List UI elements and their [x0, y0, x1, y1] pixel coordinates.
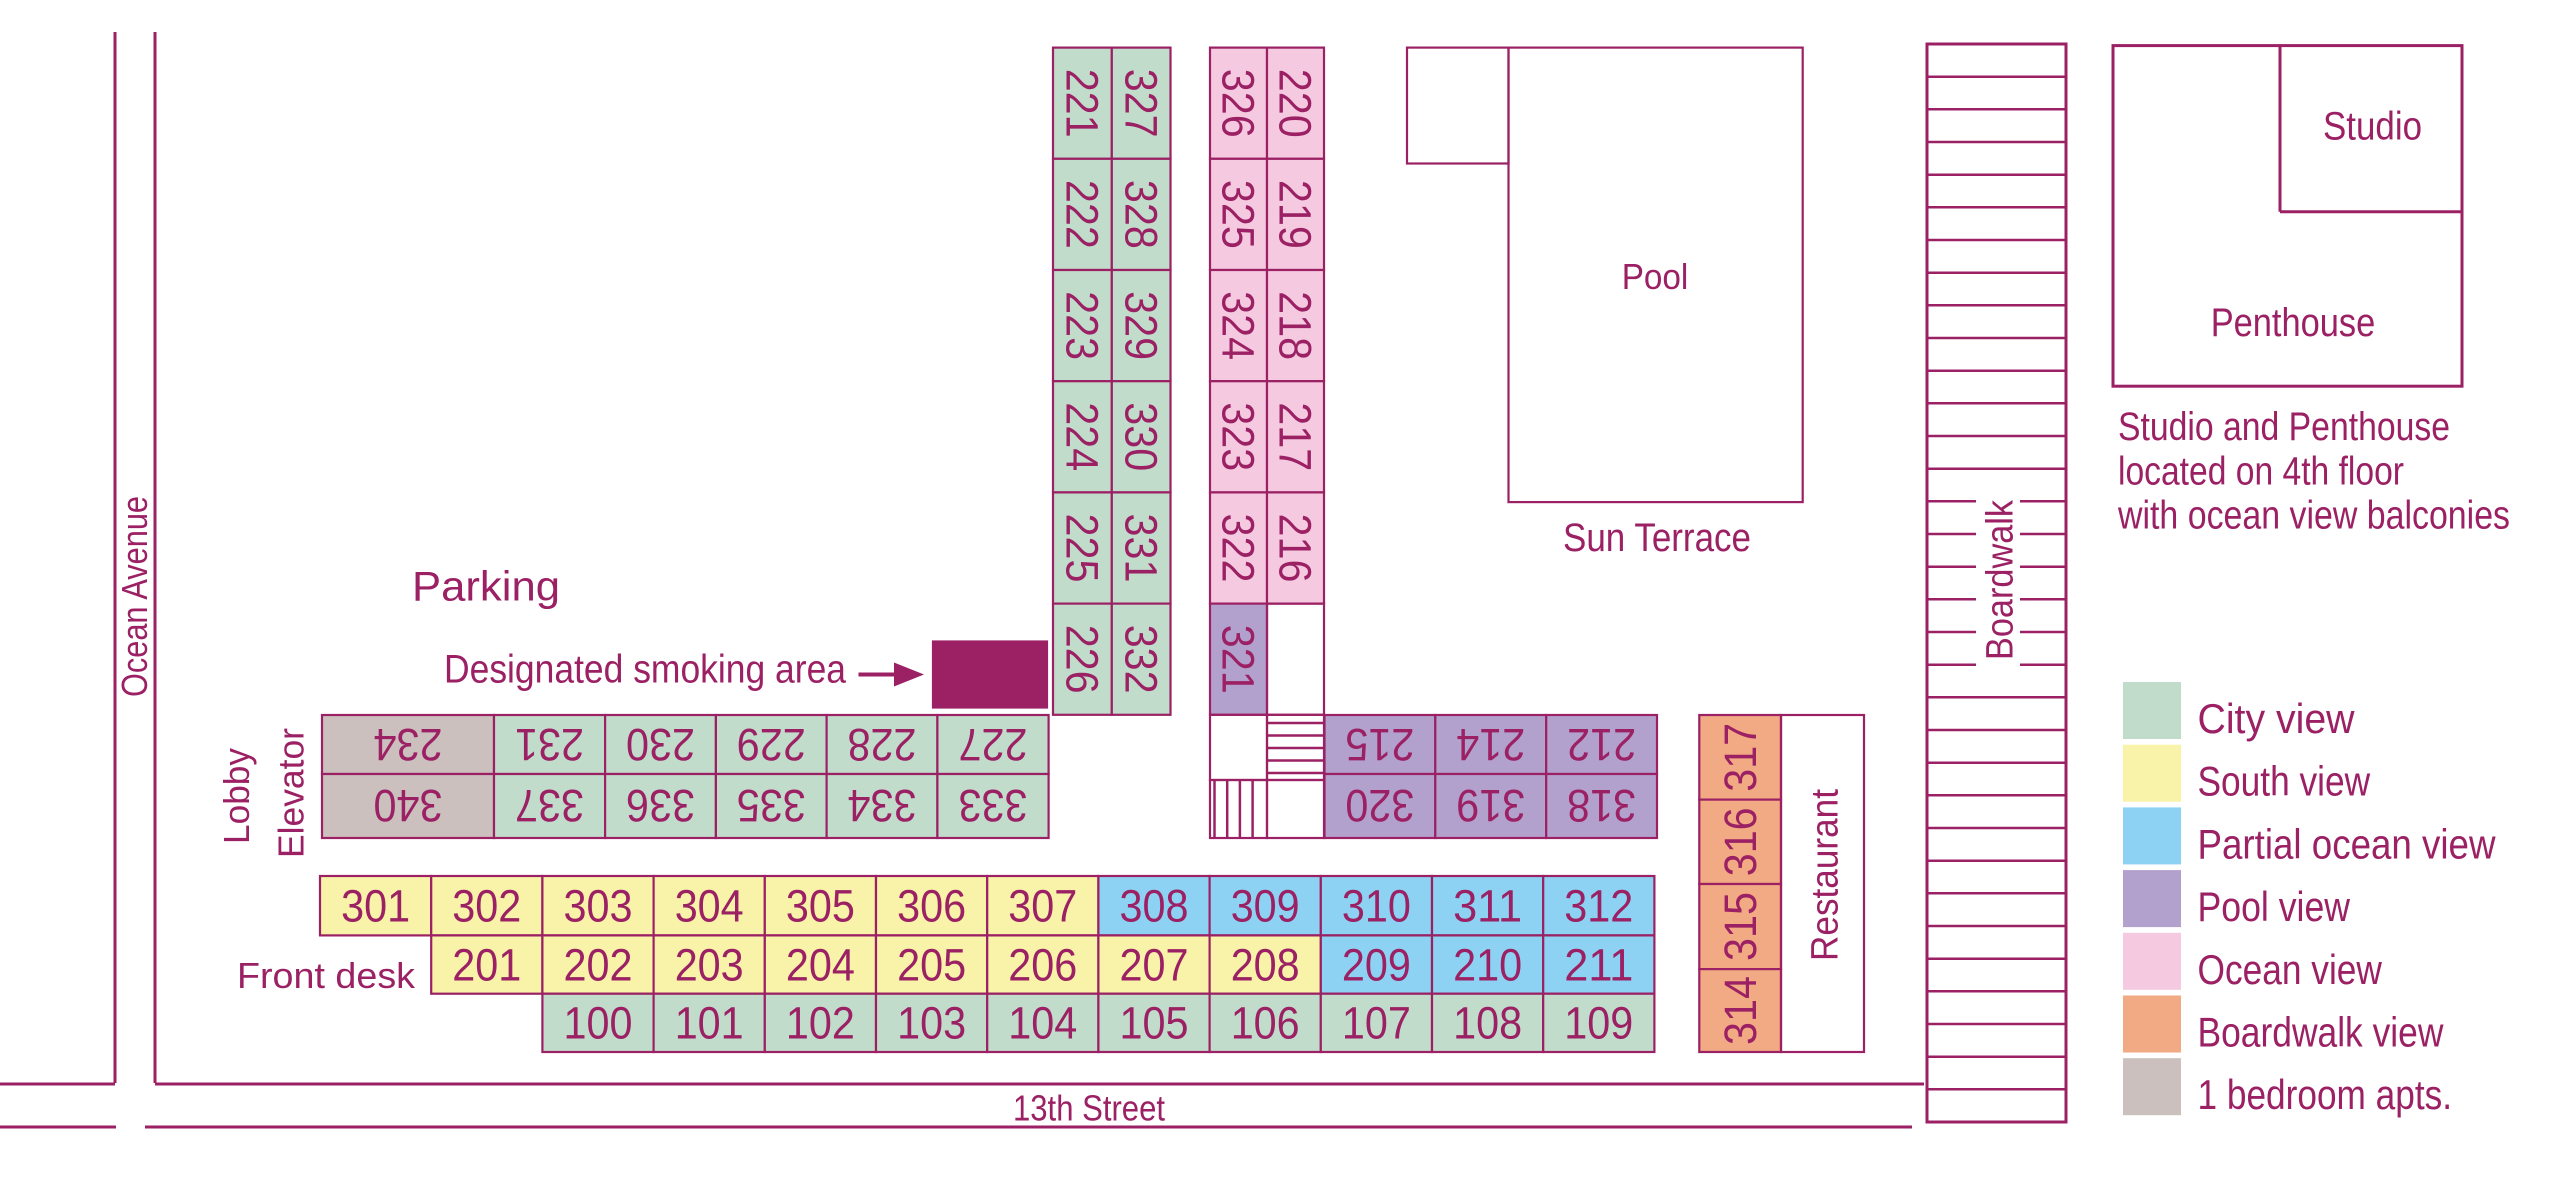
svg-text:216: 216 [1270, 514, 1321, 583]
svg-text:109: 109 [1564, 998, 1633, 1049]
svg-text:105: 105 [1120, 998, 1189, 1049]
svg-text:101: 101 [675, 998, 744, 1049]
svg-text:306: 306 [897, 881, 966, 932]
svg-text:332: 332 [1115, 625, 1166, 694]
svg-text:Boardwalk: Boardwalk [1979, 499, 2021, 660]
svg-text:226: 226 [1057, 625, 1108, 694]
svg-text:334: 334 [848, 780, 917, 831]
svg-text:City view: City view [2198, 695, 2356, 742]
svg-text:Designated smoking area: Designated smoking area [444, 648, 847, 692]
svg-text:316: 316 [1715, 807, 1766, 876]
svg-text:201: 201 [452, 939, 521, 990]
svg-text:108: 108 [1453, 998, 1522, 1049]
svg-text:218: 218 [1270, 291, 1321, 360]
svg-text:South view: South view [2198, 758, 2371, 805]
svg-text:Pool view: Pool view [2198, 883, 2351, 930]
svg-text:230: 230 [626, 719, 695, 770]
svg-text:340: 340 [374, 780, 443, 831]
svg-text:224: 224 [1057, 402, 1108, 471]
svg-text:321: 321 [1213, 625, 1264, 694]
svg-text:301: 301 [341, 881, 410, 932]
svg-text:Studio: Studio [2323, 105, 2422, 149]
svg-text:310: 310 [1342, 881, 1411, 932]
svg-text:328: 328 [1115, 180, 1166, 249]
svg-text:229: 229 [737, 719, 806, 770]
svg-text:319: 319 [1456, 780, 1525, 831]
svg-text:329: 329 [1115, 291, 1166, 360]
svg-text:219: 219 [1270, 180, 1321, 249]
svg-text:205: 205 [897, 939, 966, 990]
svg-text:13th Street: 13th Street [1013, 1088, 1165, 1129]
svg-text:337: 337 [515, 780, 584, 831]
svg-text:308: 308 [1120, 881, 1189, 932]
svg-text:212: 212 [1567, 719, 1636, 770]
svg-text:209: 209 [1342, 939, 1411, 990]
svg-text:304: 304 [675, 881, 744, 932]
svg-text:204: 204 [786, 939, 855, 990]
svg-text:1 bedroom apts.: 1 bedroom apts. [2198, 1071, 2453, 1118]
svg-text:318: 318 [1567, 780, 1636, 831]
svg-text:Penthouse: Penthouse [2211, 301, 2376, 345]
svg-text:202: 202 [564, 939, 633, 990]
svg-text:Restaurant: Restaurant [1804, 789, 1846, 961]
svg-text:307: 307 [1008, 881, 1077, 932]
svg-text:225: 225 [1057, 514, 1108, 583]
svg-text:315: 315 [1715, 892, 1766, 961]
svg-text:206: 206 [1008, 939, 1077, 990]
svg-text:102: 102 [786, 998, 855, 1049]
svg-text:217: 217 [1270, 402, 1321, 471]
svg-text:208: 208 [1231, 939, 1300, 990]
svg-text:234: 234 [374, 719, 443, 770]
svg-text:335: 335 [737, 780, 806, 831]
svg-text:323: 323 [1213, 402, 1264, 471]
svg-text:227: 227 [959, 719, 1028, 770]
svg-text:with ocean view balconies: with ocean view balconies [2117, 494, 2510, 538]
svg-text:322: 322 [1213, 514, 1264, 583]
svg-text:331: 331 [1115, 514, 1166, 583]
svg-text:107: 107 [1342, 998, 1411, 1049]
svg-text:302: 302 [452, 881, 521, 932]
svg-text:333: 333 [959, 780, 1028, 831]
svg-text:214: 214 [1456, 719, 1525, 770]
svg-text:317: 317 [1715, 723, 1766, 792]
svg-text:Boardwalk view: Boardwalk view [2198, 1009, 2444, 1056]
svg-text:Elevator: Elevator [271, 728, 312, 858]
svg-text:Ocean view: Ocean view [2198, 946, 2383, 993]
svg-text:Front desk: Front desk [237, 955, 416, 996]
svg-text:203: 203 [675, 939, 744, 990]
svg-text:100: 100 [564, 998, 633, 1049]
svg-text:104: 104 [1008, 998, 1077, 1049]
svg-text:314: 314 [1715, 976, 1766, 1045]
svg-text:303: 303 [564, 881, 633, 932]
svg-text:325: 325 [1213, 180, 1264, 249]
svg-text:Ocean Avenue: Ocean Avenue [114, 496, 155, 697]
svg-text:311: 311 [1453, 881, 1522, 932]
svg-text:207: 207 [1120, 939, 1189, 990]
svg-text:210: 210 [1453, 939, 1522, 990]
svg-text:223: 223 [1057, 291, 1108, 360]
svg-text:located on 4th floor: located on 4th floor [2118, 450, 2404, 494]
svg-text:Partial ocean view: Partial ocean view [2198, 820, 2497, 867]
svg-text:324: 324 [1213, 291, 1264, 360]
svg-text:330: 330 [1115, 402, 1166, 471]
svg-text:320: 320 [1345, 780, 1414, 831]
svg-text:222: 222 [1057, 180, 1108, 249]
svg-text:231: 231 [515, 719, 584, 770]
svg-text:327: 327 [1115, 69, 1166, 138]
svg-text:Lobby: Lobby [216, 748, 257, 844]
svg-text:309: 309 [1231, 881, 1300, 932]
svg-text:312: 312 [1564, 881, 1633, 932]
svg-text:106: 106 [1231, 998, 1300, 1049]
svg-text:336: 336 [626, 780, 695, 831]
svg-text:Sun Terrace: Sun Terrace [1563, 516, 1751, 560]
svg-text:Pool: Pool [1622, 256, 1689, 297]
svg-text:228: 228 [848, 719, 917, 770]
svg-text:Parking: Parking [412, 563, 560, 610]
svg-text:211: 211 [1564, 939, 1633, 990]
svg-text:305: 305 [786, 881, 855, 932]
svg-text:326: 326 [1213, 69, 1264, 138]
svg-text:Studio and Penthouse: Studio and Penthouse [2118, 405, 2450, 449]
svg-text:221: 221 [1057, 69, 1108, 138]
svg-text:215: 215 [1345, 719, 1414, 770]
svg-text:103: 103 [897, 998, 966, 1049]
svg-text:220: 220 [1270, 69, 1321, 138]
